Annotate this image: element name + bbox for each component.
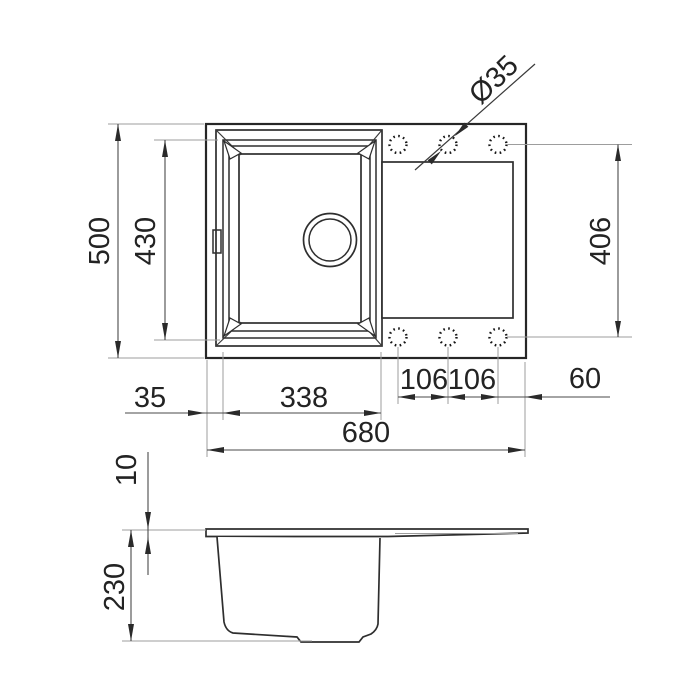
dim-hole-diameter-label: Ø35 [463, 49, 525, 110]
dim-hole-span-label: 406 [585, 217, 617, 265]
bowl-section-outline [217, 537, 380, 642]
dim-top-thickness-label: 10 [111, 454, 143, 486]
drain-opening [304, 214, 357, 267]
sink-technical-drawing: 500 430 Ø35 406 35 338 106 106 60 680 10… [0, 0, 700, 700]
sink-top-slab-section [206, 529, 528, 537]
dim-right-offset-label: 60 [569, 363, 601, 395]
drawing-svg: 500 430 Ø35 406 35 338 106 106 60 680 10… [0, 0, 700, 700]
side-view [122, 452, 528, 642]
dim-hole-spacing-left-label: 106 [400, 364, 448, 396]
dim-bowl-height-label: 230 [99, 563, 131, 611]
dim-bowl-depth-label: 430 [130, 217, 162, 265]
dim-left-offset-label: 35 [134, 382, 166, 414]
dim-overall-width-label: 680 [342, 417, 390, 449]
drainboard-recess [382, 162, 513, 318]
dim-overall-depth-label: 500 [84, 217, 116, 265]
dim-bowl-width-label: 338 [280, 382, 328, 414]
dim-hole-spacing-right-label: 106 [448, 364, 496, 396]
top-view [206, 124, 526, 358]
